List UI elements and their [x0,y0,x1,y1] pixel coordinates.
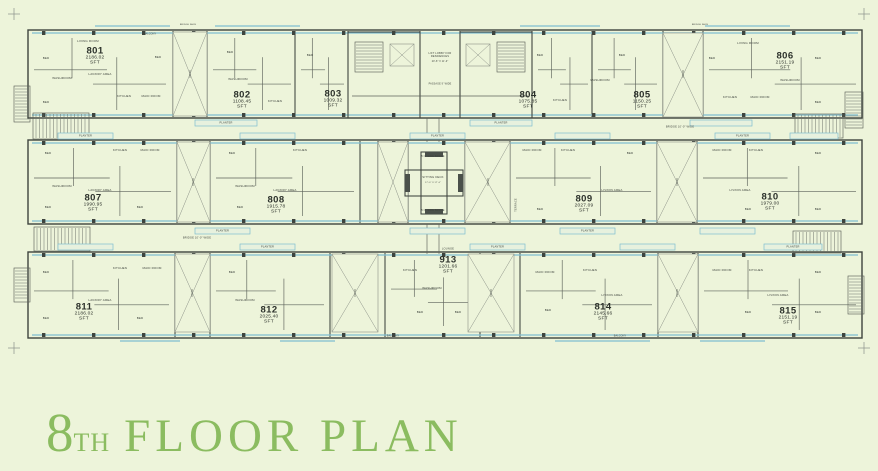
mullion-post [592,113,595,117]
mullion-post [142,141,145,145]
mullion-post [192,333,195,337]
label-washroom: WASHROOM [780,78,799,82]
mullion-post [542,31,545,35]
unit-area-unit: SFT [260,319,279,325]
mullion-post [792,333,795,337]
wing-outlines [28,30,862,338]
unit-number: 805 [633,90,651,99]
unit-815-label: 8152151.19SFT [779,306,798,326]
mullion-post [492,113,495,117]
mullion-post [542,141,545,145]
label-bed: BED [537,53,544,57]
mullion-post [642,253,645,257]
unit-number: 804 [519,90,538,99]
unit-803-label: 8031009.32SFT [324,89,343,109]
label-bed: BED [45,205,52,209]
mullion-post [642,141,645,145]
label-kitchen: KITCHEN [749,148,763,152]
mullion-post [42,113,45,117]
label-liv_din: LIV/DIN AREA [767,293,788,297]
label-bed: BED [815,56,822,60]
label-void: VOID [489,289,493,297]
mullion-post [92,31,95,35]
mullion-post [742,141,745,145]
mullion-post [292,333,295,337]
unit-number: 801 [86,46,105,55]
label-bridge_5: 5'-0" WIDE BRIDGE [421,156,444,158]
label-void: VOID [190,289,194,297]
unit-area-unit: SFT [779,320,798,326]
unit-808-label: 8081915.78SFT [267,195,286,215]
unit-802-label: 8021108.45SFT [233,90,251,110]
label-planter: PLANTER [786,246,799,249]
planter-strip [240,133,295,139]
mullion-post [592,31,595,35]
mullion-post [92,253,95,257]
label-bed: BED [709,56,716,60]
label-living_room: LIVING ROOM [737,41,759,45]
mullion-post [142,219,145,223]
planter-strip [555,133,610,139]
label-bed: BED [627,151,634,155]
label-maid_room: MAID ROOM [750,95,769,99]
label-maid_room: MAID ROOM [712,268,731,272]
mullion-post [742,253,745,257]
mullion-post [842,31,845,35]
label-lounge: LOUNGE [442,248,454,251]
label-planter: PLANTER [261,246,274,249]
unit-number: 809 [575,194,594,203]
mullion-post [542,333,545,337]
floor-plan-drawing [0,0,878,471]
mullion-post [42,253,45,257]
label-passage: PASSAGE 9' WIDE [429,83,452,86]
label-bed: BED [745,207,752,211]
unit-806-label: 8062151.19SFT [776,51,795,71]
mullion-post [842,141,845,145]
label-washroom: WASHROOM [422,286,441,290]
mullion-post [692,333,695,337]
unit-number: 812 [260,305,279,314]
unit-area-unit: SFT [75,316,94,322]
planter-strip [690,120,752,126]
label-washroom: WASHROOM [235,184,254,188]
mullion-post [292,141,295,145]
mullion-post [492,333,495,337]
mullion-post [542,113,545,117]
unit-number: 803 [324,89,343,98]
mullion-post [242,31,245,35]
unit-area-unit: SFT [575,208,594,214]
label-balcony: BALCONY [614,335,626,338]
unit-area-unit: SFT [267,209,286,215]
label-living_room: LIVING ROOM [77,39,99,43]
mullion-post [442,31,445,35]
label-bed: BED [417,310,424,314]
label-kitchen: KITCHEN [113,148,127,152]
label-terrace: TERRACE [515,198,518,211]
mullion-post [142,253,145,257]
label-bed: BED [619,53,626,57]
unit-area-unit: SFT [84,207,103,213]
mullion-post [292,219,295,223]
unit-area-unit: SFT [233,104,251,110]
label-washroom: WASHROOM [52,184,71,188]
label-lav_dry: LAV/DRY AREA [273,188,296,192]
unit-814-label: 8142145.66SFT [594,302,613,322]
label-kitchen: KITCHEN [403,268,417,272]
label-void: VOID [188,70,192,78]
label-bed: BED [43,56,50,60]
mullion-post [442,141,445,145]
mullion-post [242,333,245,337]
mullion-post [242,219,245,223]
unit-810-label: 8101979.00SFT [761,192,780,212]
mullion-post [592,219,595,223]
label-lav_dry: LAV/DRY AREA [88,72,111,76]
label-bed: BED [815,310,822,314]
planter-strip [790,133,838,139]
mullion-post [342,219,345,223]
mullion-post [842,253,845,257]
mullion-post [242,253,245,257]
mullion-post [92,219,95,223]
mullion-post [742,113,745,117]
title-text: FLOOR PLAN [124,409,463,463]
unit-number: 815 [779,306,798,315]
label-bed: BED [815,100,822,104]
label-bed: BED [227,50,234,54]
mullion-post [292,113,295,117]
mullion-post [42,31,45,35]
label-kitchen: KITCHEN [553,98,567,102]
label-liv_din: LIV/DIN AREA [601,293,622,297]
mullion-post [642,31,645,35]
label-bridge_10: BRIDGE 10'-0" WIDE [666,126,694,129]
unit-number: 810 [761,192,780,201]
label-lobby_dim: 20'-8" X 11'-0" [432,61,449,63]
label-bridge_face: BRIDGE FACE [180,24,196,26]
label-bed: BED [237,205,244,209]
label-void: VOID [353,289,357,297]
unit-number: 807 [84,193,103,202]
mullion-post [242,113,245,117]
unit-area-unit: SFT [86,60,105,66]
label-washroom: WASHROOM [228,77,247,81]
label-washroom: WASHROOM [590,78,609,82]
label-void: VOID [681,70,685,78]
label-void: VOID [486,178,490,186]
label-maid_room: MAID ROOM [141,94,160,98]
unit-number: 808 [267,195,286,204]
label-bed: BED [537,207,544,211]
unit-number: 913 [439,255,458,264]
unit-number: 811 [75,302,94,311]
mullion-post [742,333,745,337]
mullion-post [742,219,745,223]
unit-812-label: 8122025.40SFT [260,305,279,325]
mullion-post [592,253,595,257]
mullion-post [742,31,745,35]
label-bed: BED [45,151,52,155]
label-bed: BED [229,151,236,155]
mullion-post [92,333,95,337]
label-kitchen: KITCHEN [113,266,127,270]
label-kitchen: KITCHEN [561,148,575,152]
label-bridge_10: BRIDGE 10'-0" WIDE [183,237,211,240]
floor-ordinal: TH [74,428,111,458]
mullion-post [442,219,445,223]
unit-805-label: 8051150.25SFT [633,90,651,110]
mullion-post [792,253,795,257]
label-bed: BED [137,205,144,209]
label-maid_room: MAID ROOM [140,148,159,152]
mullion-post [842,219,845,223]
label-liv_din: LIV/DIN AREA [729,188,750,192]
planter-strip [410,228,465,234]
mullion-post [642,333,645,337]
mullion-post [442,113,445,117]
mullion-post [792,31,795,35]
mullion-post [542,219,545,223]
label-sitting_deck: SITTING DECK [422,175,443,179]
label-planter: PLANTER [79,135,92,138]
unit-number: 806 [776,51,795,60]
label-maid_room: MAID ROOM [535,270,554,274]
label-bed: BED [455,310,462,314]
mullion-post [342,113,345,117]
label-planter: PLANTER [431,135,444,138]
label-maid_room: MAID ROOM [522,148,541,152]
mullion-post [792,219,795,223]
label-kitchen: KITCHEN [749,268,763,272]
unit-number: 814 [594,302,613,311]
label-planter: PLANTER [736,135,749,138]
mullion-post [292,253,295,257]
mullion-post [392,113,395,117]
mullion-post [442,333,445,337]
wing-outline [28,140,862,224]
label-balcony: BALCONY [387,335,399,338]
unit-807-label: 8071990.95SFT [84,193,103,213]
deck-pad [458,174,463,192]
mullion-post [642,113,645,117]
floor-plan-sheet: 8012186.02SFT8021108.45SFT8031009.32SFT8… [0,0,878,471]
label-planter: PLANTER [216,230,229,233]
label-bed: BED [815,151,822,155]
floor-number: 8 [46,405,74,460]
label-void: VOID [191,178,195,186]
label-kitchen: KITCHEN [723,95,737,99]
label-void: VOID [675,289,679,297]
unit-area-unit: SFT [324,103,343,109]
mullion-post [142,113,145,117]
unit-number: 802 [233,90,251,99]
unit-area-unit: SFT [761,206,780,212]
deck-pad [405,174,410,192]
label-bed: BED [43,270,50,274]
mullion-post [592,333,595,337]
unit-area-unit: SFT [633,104,651,110]
mullion-post [592,141,595,145]
mullion-post [42,219,45,223]
label-planter: PLANTER [581,230,594,233]
mullion-post [92,141,95,145]
label-kitchen: KITCHEN [293,148,307,152]
planter-strip [620,244,675,250]
label-kitchen: KITCHEN [117,94,131,98]
label-bed: BED [745,310,752,314]
mullion-post [142,333,145,337]
label-bed: BED [815,270,822,274]
mullion-post [242,141,245,145]
label-kitchen: KITCHEN [268,99,282,103]
mullion-post [42,333,45,337]
label-bed: BED [229,270,236,274]
planter-strip [700,228,755,234]
label-kitchen: KITCHEN [583,268,597,272]
mullion-post [342,333,345,337]
mullion-post [542,253,545,257]
mullion-post [292,31,295,35]
unit-801-label: 8012186.02SFT [86,46,105,66]
planter-strip [58,244,113,250]
unit-809-label: 8092027.09SFT [575,194,594,214]
unit-area-unit: SFT [519,104,538,110]
sheet-title: 8TH FLOOR PLAN [46,405,463,463]
label-bridge_5: 5'-0" WIDE BRIDGE [421,210,444,212]
unit-area-unit: SFT [776,65,795,71]
label-planter: PLANTER [491,246,504,249]
label-planter: PLANTER [494,122,507,125]
label-bridge_face: BRIDGE FACE [692,24,708,26]
unit-area-unit: SFT [439,269,458,275]
mullion-post [342,141,345,145]
label-void: VOID [675,178,679,186]
label-bed: BED [307,53,314,57]
unit-804-label: 8041075.85SFT [519,90,538,110]
label-bed: BED [155,55,162,59]
mullion-post [842,333,845,337]
mullion-post [42,141,45,145]
label-balcony: BALCONY [144,32,156,35]
label-bed: BED [43,316,50,320]
mullion-post [92,113,95,117]
label-lift_lobby: LIFT LOBBY FOR RESIDENCES [423,52,457,58]
label-deck_dim: 17'-0" X 17'-0" [425,182,441,184]
mullion-post [642,219,645,223]
label-liv_din: LIV/DIN AREA [601,188,622,192]
label-bed: BED [815,207,822,211]
label-bed: BED [137,316,144,320]
mullion-post [392,253,395,257]
label-bed: BED [43,100,50,104]
mullion-post [342,31,345,35]
mullion-post [792,141,795,145]
label-washroom: WASHROOM [235,298,254,302]
unit-811-label: 8112186.02SFT [75,302,94,322]
unit-913-label: 9131201.66SFT [439,255,458,275]
glazing-lines [32,26,858,341]
label-washroom: WASHROOM [52,76,71,80]
label-bed: BED [545,308,552,312]
label-maid_room: MAID ROOM [142,266,161,270]
label-planter: PLANTER [219,122,232,125]
unit-area-unit: SFT [594,316,613,322]
label-maid_room: MAID ROOM [712,148,731,152]
